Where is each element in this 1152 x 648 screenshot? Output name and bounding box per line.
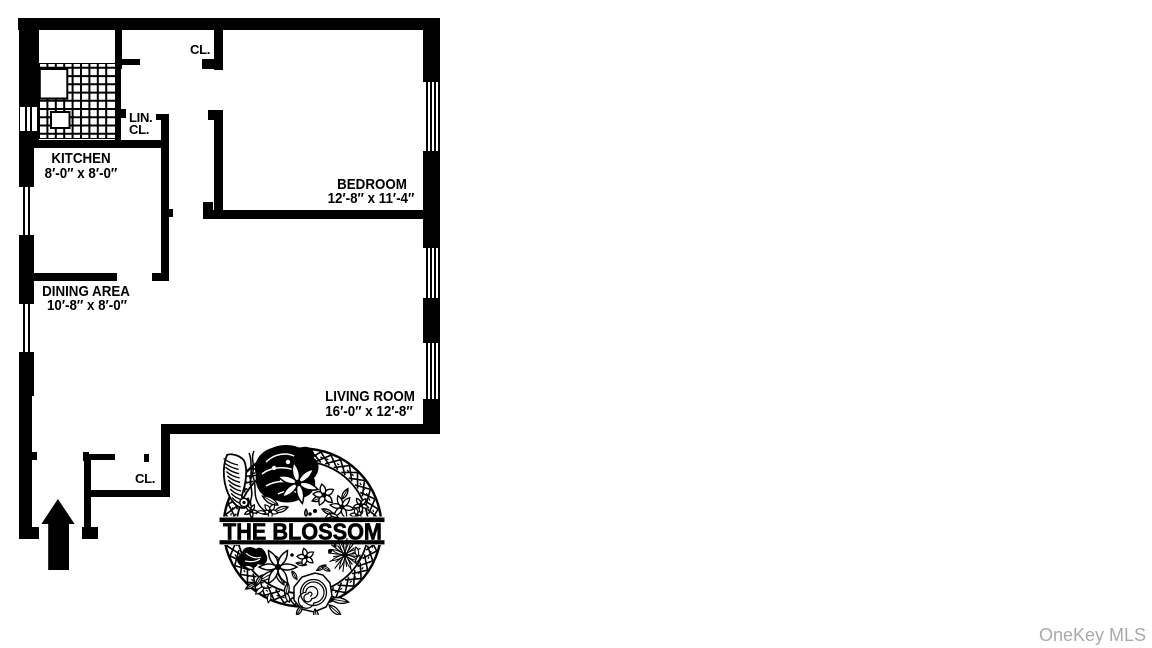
svg-text:THE BLOSSOM: THE BLOSSOM xyxy=(223,519,382,545)
